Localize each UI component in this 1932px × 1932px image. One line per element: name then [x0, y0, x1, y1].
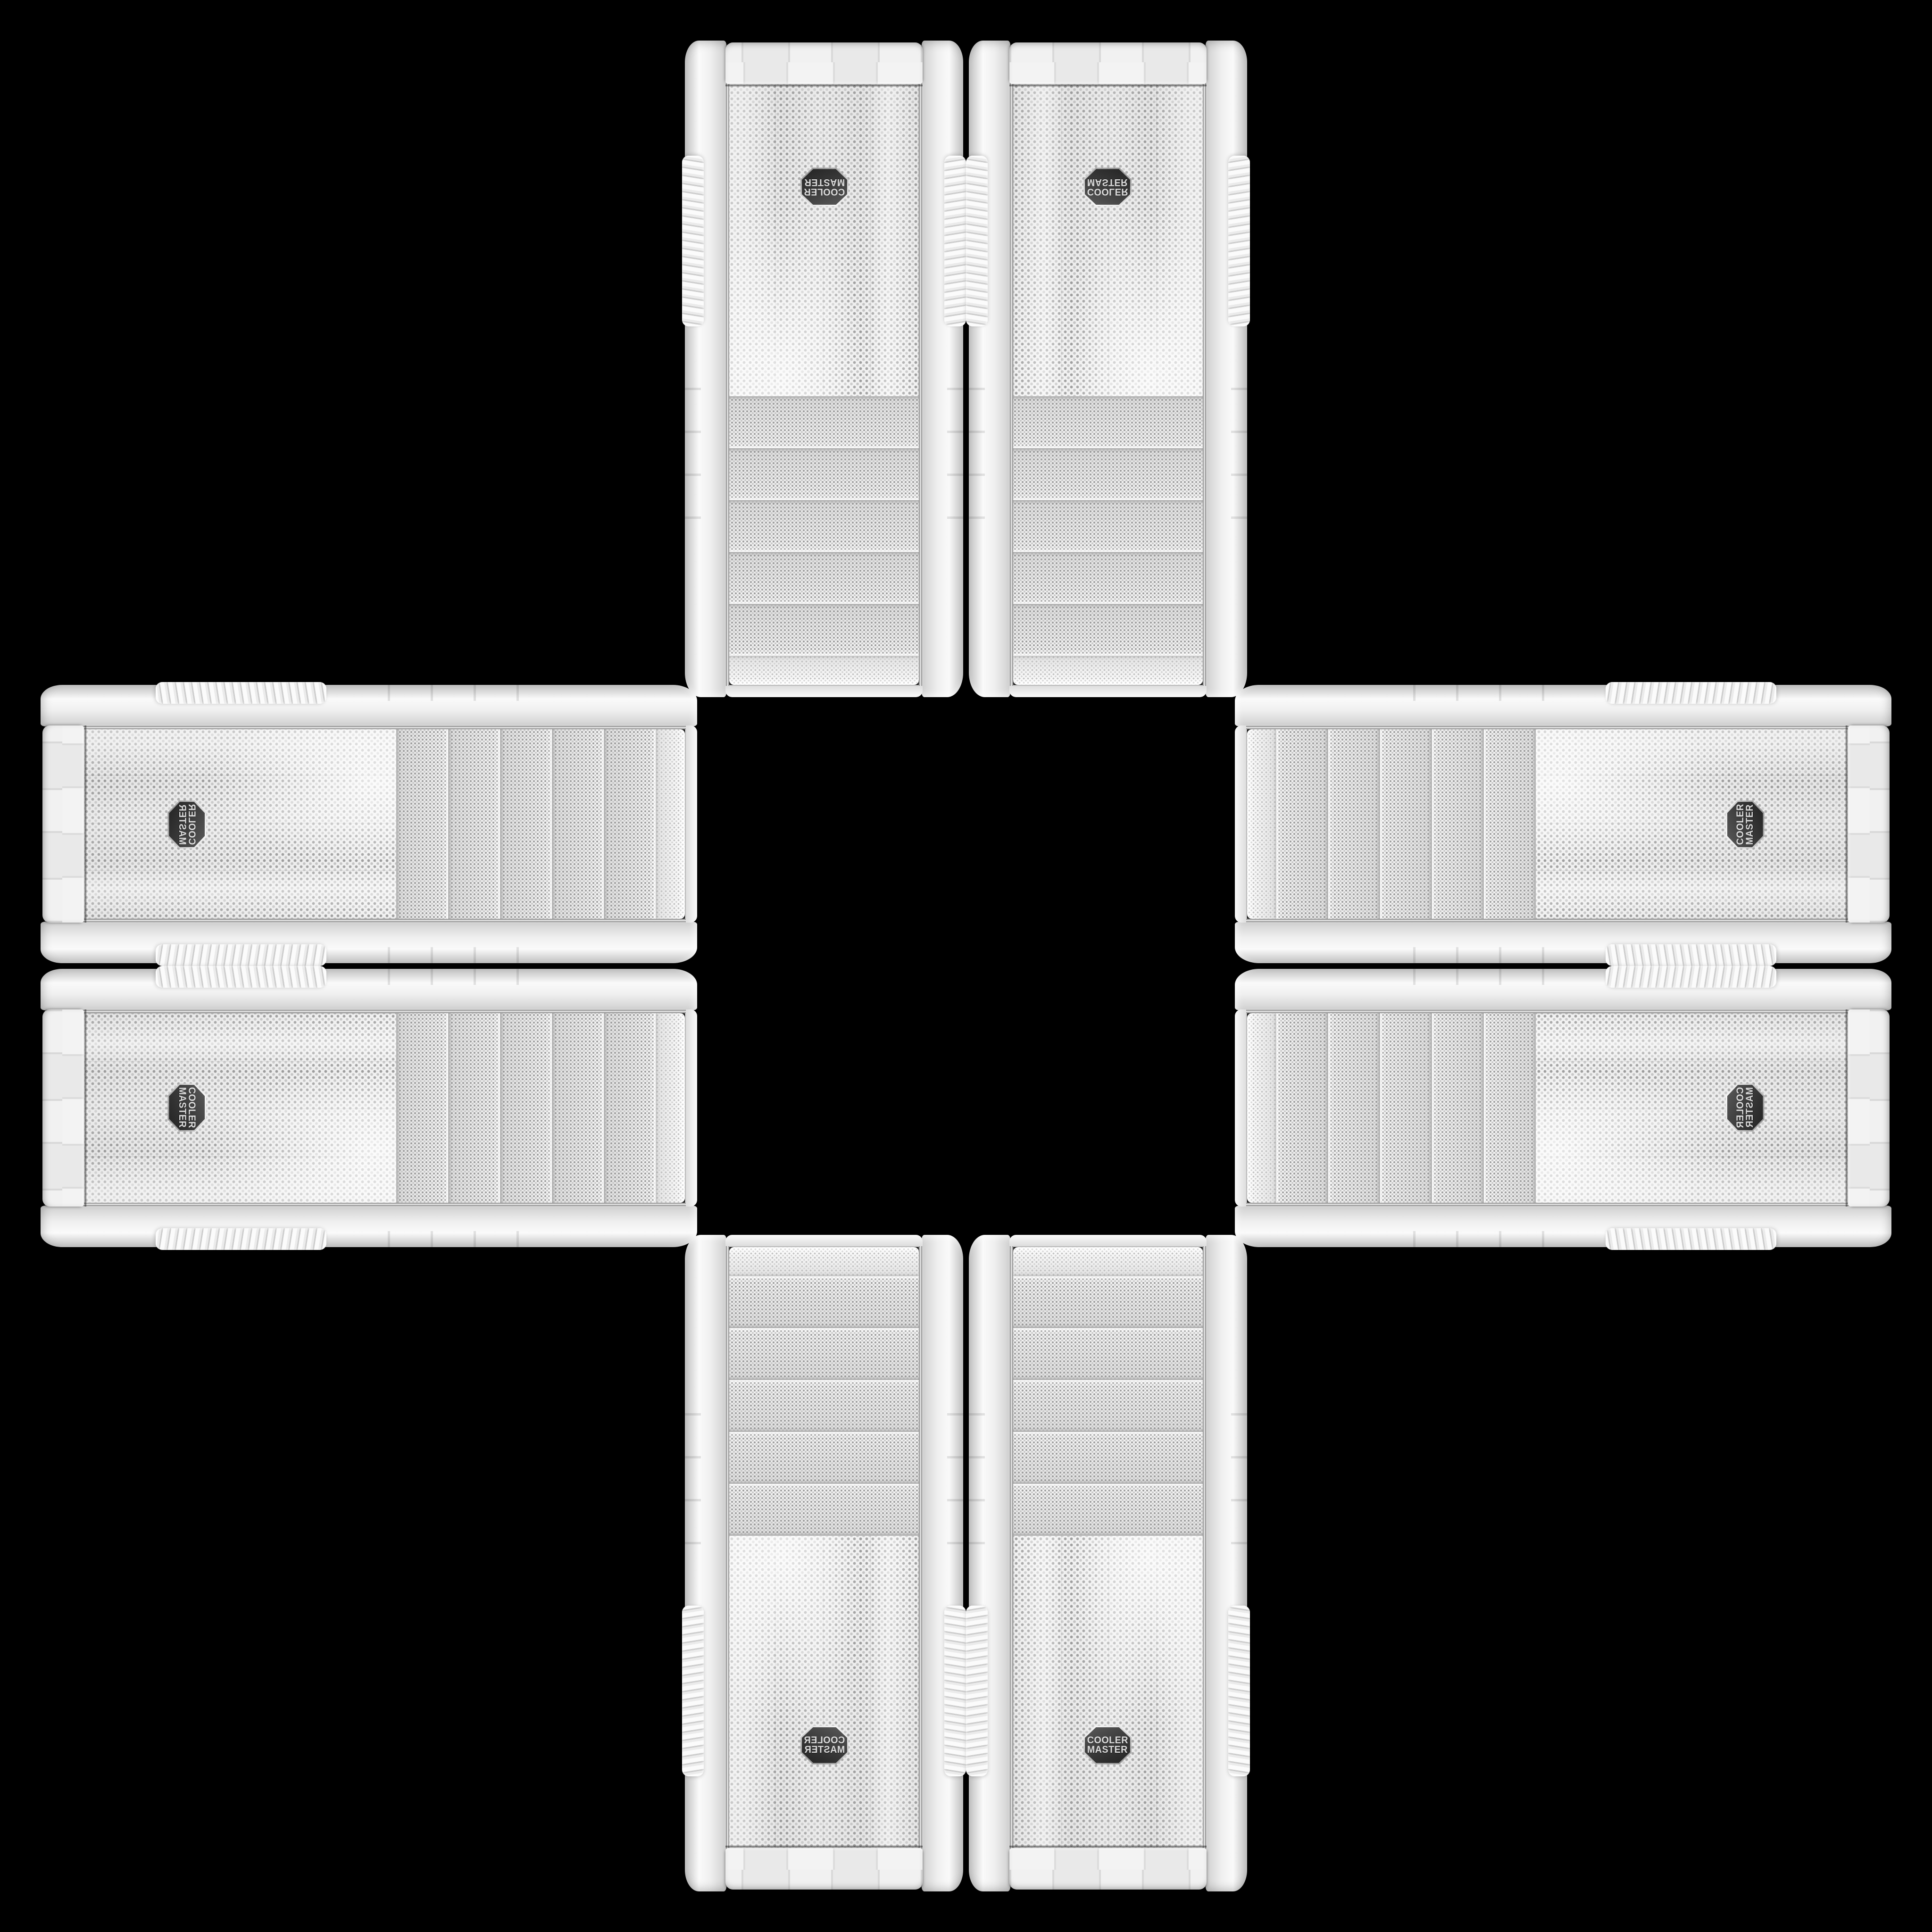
bay-cover	[1484, 1013, 1536, 1203]
badge-face: COOLER MASTER	[169, 1085, 205, 1130]
right-side-rail	[41, 685, 697, 726]
top-bezel	[1235, 725, 1247, 923]
right-chrome-trim	[726, 1246, 729, 1887]
bay-stack	[1276, 1013, 1536, 1203]
top-mesh-band	[1013, 1247, 1203, 1276]
bay-cover	[1432, 729, 1484, 919]
left-side-rail	[1235, 969, 1891, 1010]
left-chrome-trim	[1246, 919, 1887, 922]
right-side-rail	[685, 41, 726, 697]
right-chrome-trim	[1246, 1203, 1887, 1206]
badge-face: COOLER MASTER	[169, 802, 205, 847]
bottom-bezel	[1009, 42, 1207, 84]
bay-cover	[448, 729, 500, 919]
bay-cover	[396, 729, 448, 919]
top-mesh-band	[729, 656, 919, 685]
bay-cover	[604, 729, 656, 919]
left-chrome-trim	[1010, 45, 1013, 686]
front-mesh: COOLER MASTER	[1013, 84, 1203, 396]
cooler-master-badge: COOLER MASTER	[167, 800, 206, 849]
left-grip-ribs	[1606, 966, 1776, 988]
bay-cover	[500, 1013, 552, 1203]
badge-text-master: MASTER	[804, 177, 845, 187]
badge-text-master: MASTER	[804, 1745, 845, 1755]
right-side-rail	[1206, 1235, 1247, 1891]
right-side-rail	[1235, 685, 1891, 726]
bay-cover	[1276, 729, 1328, 919]
top-bezel	[1235, 1009, 1247, 1207]
cooler-master-badge: COOLER MASTER	[800, 167, 849, 206]
left-grip-ribs	[156, 944, 326, 966]
left-grip-ribs	[944, 1606, 966, 1776]
bay-stack	[396, 1013, 656, 1203]
badge-text-cooler: COOLER	[1087, 187, 1128, 196]
bay-cover	[1013, 1484, 1203, 1536]
badge-text-cooler: COOLER	[187, 804, 196, 845]
right-chrome-trim	[1246, 726, 1887, 729]
front-mesh: COOLER MASTER	[729, 1536, 919, 1848]
bottom-bezel	[725, 1848, 923, 1890]
badge-text-master: MASTER	[177, 804, 187, 845]
front-mesh: COOLER MASTER	[84, 1013, 396, 1203]
left-chrome-trim	[45, 919, 686, 922]
badge-face: COOLER MASTER	[1727, 1085, 1763, 1130]
bottom-bezel	[1848, 1009, 1890, 1207]
right-grip-ribs	[682, 1606, 704, 1776]
left-side-rail	[922, 1235, 963, 1891]
bay-cover	[1380, 1013, 1432, 1203]
right-chrome-trim	[1203, 45, 1206, 686]
right-chrome-trim	[45, 726, 686, 729]
left-side-rail	[41, 922, 697, 963]
left-chrome-trim	[1010, 1246, 1013, 1887]
top-mesh-band	[656, 729, 685, 919]
cooler-master-badge: COOLER MASTER	[1083, 1726, 1132, 1765]
front-mesh: COOLER MASTER	[1013, 1536, 1203, 1848]
front-panel: COOLER MASTER	[1276, 729, 1848, 919]
bay-cover	[1013, 1380, 1203, 1432]
bay-cover	[1013, 1432, 1203, 1484]
badge-text-cooler: COOLER	[804, 1736, 845, 1745]
bay-cover	[729, 448, 919, 500]
bay-cover	[729, 500, 919, 552]
top-bezel	[685, 1009, 697, 1207]
bottom-bezel	[725, 42, 923, 84]
front-mesh: COOLER MASTER	[1536, 729, 1848, 919]
bay-cover	[500, 729, 552, 919]
right-chrome-trim	[45, 1203, 686, 1206]
left-grip-ribs	[966, 1606, 988, 1776]
case-left-top: COOLER MASTER	[41, 685, 697, 963]
case-bottom-right: COOLER MASTER	[969, 1235, 1247, 1891]
bay-stack	[729, 396, 919, 656]
case-right-bottom: COOLER MASTER	[1235, 969, 1891, 1247]
right-grip-ribs	[1606, 1228, 1776, 1250]
bay-cover	[1013, 604, 1203, 656]
badge-text-master: MASTER	[177, 1087, 187, 1128]
left-grip-ribs	[156, 966, 326, 988]
left-chrome-trim	[919, 45, 922, 686]
case-bottom-left: COOLER MASTER	[685, 1235, 963, 1891]
right-grip-ribs	[156, 1228, 326, 1250]
top-mesh-band	[729, 1247, 919, 1276]
bay-cover	[552, 1013, 604, 1203]
front-mesh: COOLER MASTER	[729, 84, 919, 396]
badge-text-cooler: COOLER	[1736, 804, 1745, 845]
bay-cover	[729, 1328, 919, 1380]
bay-cover	[1013, 1276, 1203, 1328]
badge-text-master: MASTER	[1087, 177, 1128, 187]
right-grip-ribs	[156, 682, 326, 704]
badge-face: COOLER MASTER	[1085, 1727, 1130, 1763]
bay-stack	[729, 1276, 919, 1536]
bay-cover	[1484, 729, 1536, 919]
bay-cover	[1276, 1013, 1328, 1203]
bay-cover	[1432, 1013, 1484, 1203]
badge-text-cooler: COOLER	[1736, 1087, 1745, 1128]
badge-text-cooler: COOLER	[187, 1087, 196, 1128]
bay-cover	[604, 1013, 656, 1203]
front-mesh: COOLER MASTER	[84, 729, 396, 919]
case-top-right: COOLER MASTER	[969, 41, 1247, 697]
front-panel: COOLER MASTER	[1013, 1276, 1203, 1848]
left-grip-ribs	[944, 156, 966, 326]
left-grip-ribs	[966, 156, 988, 326]
front-panel: COOLER MASTER	[729, 84, 919, 656]
cooler-master-badge: COOLER MASTER	[1726, 800, 1765, 849]
right-side-rail	[685, 1235, 726, 1891]
top-mesh-band	[1247, 1013, 1276, 1203]
left-side-rail	[922, 41, 963, 697]
case-top-left: COOLER MASTER	[685, 41, 963, 697]
right-side-rail	[1235, 1206, 1891, 1247]
bay-stack	[1276, 729, 1536, 919]
top-mesh-band	[1247, 729, 1276, 919]
bay-stack	[396, 729, 656, 919]
bay-cover	[1013, 1328, 1203, 1380]
bay-cover	[1380, 729, 1432, 919]
badge-face: COOLER MASTER	[1727, 802, 1763, 847]
badge-text-master: MASTER	[1745, 804, 1755, 845]
bay-cover	[729, 1432, 919, 1484]
bottom-bezel	[42, 1009, 84, 1207]
bay-cover	[729, 1380, 919, 1432]
front-panel: COOLER MASTER	[84, 1013, 656, 1203]
top-bezel	[685, 725, 697, 923]
bay-stack	[1013, 396, 1203, 656]
bay-cover	[1013, 448, 1203, 500]
left-side-rail	[1235, 922, 1891, 963]
cooler-master-badge: COOLER MASTER	[800, 1726, 849, 1765]
right-grip-ribs	[682, 156, 704, 326]
right-chrome-trim	[726, 45, 729, 686]
bay-cover	[396, 1013, 448, 1203]
front-mesh: COOLER MASTER	[1536, 1013, 1848, 1203]
front-panel: COOLER MASTER	[729, 1276, 919, 1848]
bay-cover	[552, 729, 604, 919]
front-panel: COOLER MASTER	[84, 729, 656, 919]
top-mesh-band	[656, 1013, 685, 1203]
bay-cover	[729, 396, 919, 448]
bay-cover	[729, 1276, 919, 1328]
bottom-bezel	[1848, 725, 1890, 923]
cooler-master-badge: COOLER MASTER	[1083, 167, 1132, 206]
badge-face: COOLER MASTER	[802, 1727, 847, 1763]
bay-cover	[729, 552, 919, 604]
cooler-master-badge: COOLER MASTER	[167, 1083, 206, 1132]
top-bezel	[725, 685, 923, 697]
bay-cover	[1013, 500, 1203, 552]
left-chrome-trim	[45, 1010, 686, 1013]
badge-face: COOLER MASTER	[1085, 169, 1130, 205]
bay-cover	[729, 1484, 919, 1536]
bay-cover	[1013, 396, 1203, 448]
left-chrome-trim	[1246, 1010, 1887, 1013]
top-bezel	[1009, 685, 1207, 697]
bay-stack	[1013, 1276, 1203, 1536]
left-side-rail	[41, 969, 697, 1010]
right-chrome-trim	[1203, 1246, 1206, 1887]
bottom-bezel	[1009, 1848, 1207, 1890]
right-grip-ribs	[1228, 1606, 1250, 1776]
left-side-rail	[969, 1235, 1010, 1891]
top-mesh-band	[1013, 656, 1203, 685]
bay-cover	[1013, 552, 1203, 604]
front-panel: COOLER MASTER	[1276, 1013, 1848, 1203]
right-grip-ribs	[1228, 156, 1250, 326]
right-side-rail	[41, 1206, 697, 1247]
top-bezel	[725, 1235, 923, 1247]
badge-face: COOLER MASTER	[802, 169, 847, 205]
cooler-master-badge: COOLER MASTER	[1726, 1083, 1765, 1132]
right-grip-ribs	[1606, 682, 1776, 704]
left-side-rail	[969, 41, 1010, 697]
left-chrome-trim	[919, 1246, 922, 1887]
case-right-top: COOLER MASTER	[1235, 685, 1891, 963]
scene: COOLER MASTER COOLER MASTER	[0, 0, 1932, 1932]
bay-cover	[1328, 1013, 1380, 1203]
badge-text-master: MASTER	[1745, 1087, 1755, 1128]
right-side-rail	[1206, 41, 1247, 697]
badge-text-master: MASTER	[1087, 1745, 1128, 1755]
bay-cover	[1328, 729, 1380, 919]
badge-text-cooler: COOLER	[1087, 1736, 1128, 1745]
left-grip-ribs	[1606, 944, 1776, 966]
front-panel: COOLER MASTER	[1013, 84, 1203, 656]
case-left-bottom: COOLER MASTER	[41, 969, 697, 1247]
bay-cover	[729, 604, 919, 656]
badge-text-cooler: COOLER	[804, 187, 845, 196]
bay-cover	[448, 1013, 500, 1203]
top-bezel	[1009, 1235, 1207, 1247]
bottom-bezel	[42, 725, 84, 923]
